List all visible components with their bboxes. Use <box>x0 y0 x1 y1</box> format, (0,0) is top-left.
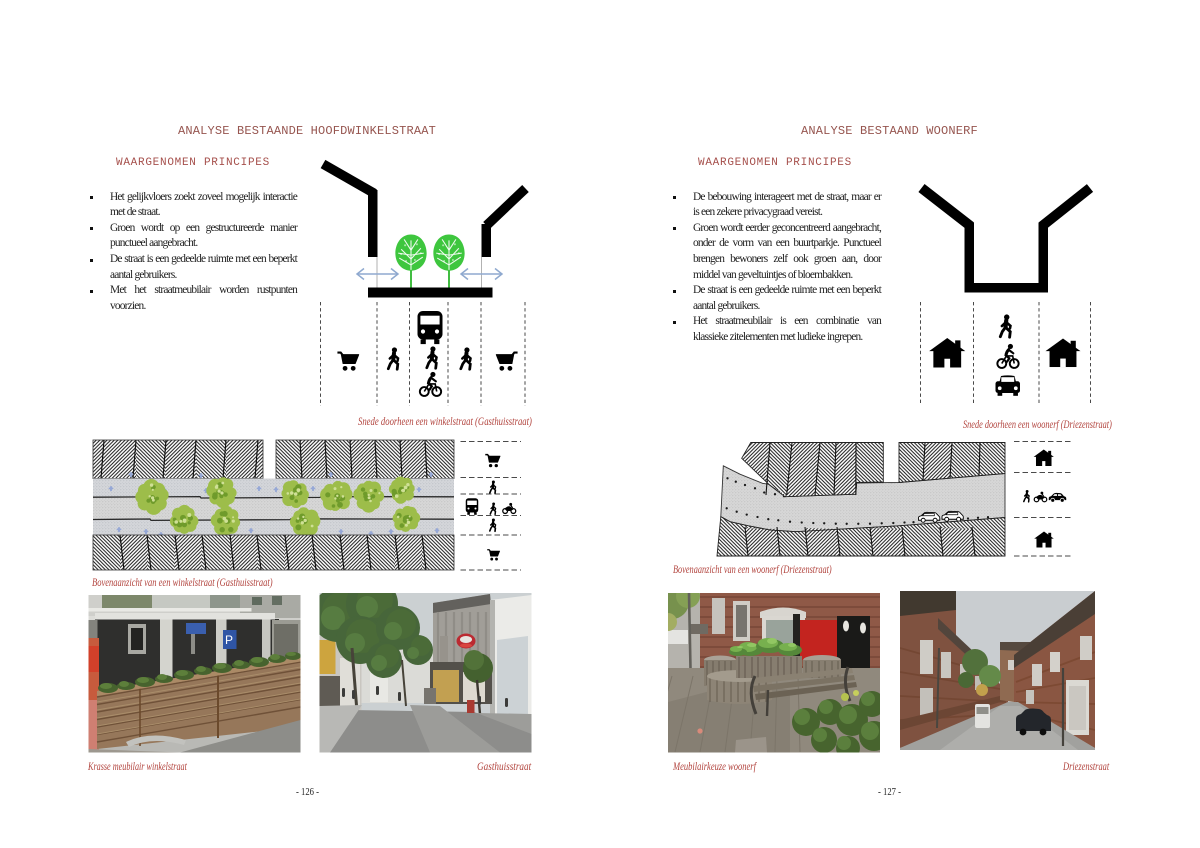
svg-text:P: P <box>225 633 233 647</box>
